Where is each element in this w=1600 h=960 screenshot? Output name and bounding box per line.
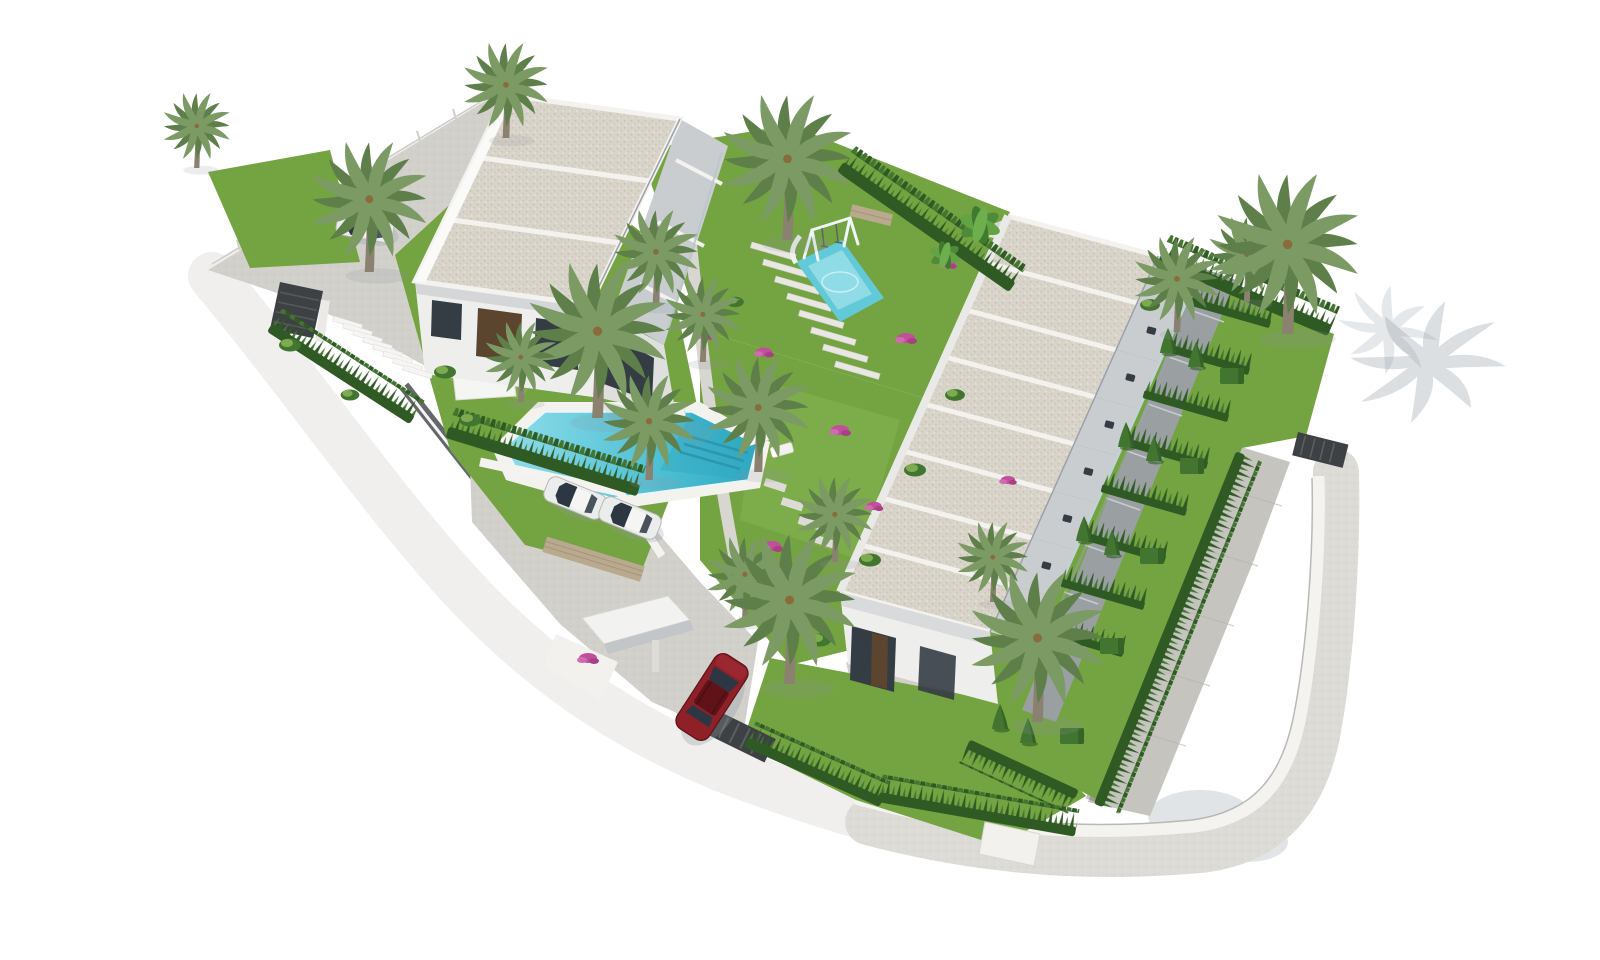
render-canvas (0, 0, 1600, 960)
canopy-post (652, 640, 659, 672)
site-plan-render (0, 0, 1600, 960)
palm-tree (157, 86, 237, 175)
villa-window (431, 300, 462, 340)
townhouse-door (871, 633, 888, 689)
